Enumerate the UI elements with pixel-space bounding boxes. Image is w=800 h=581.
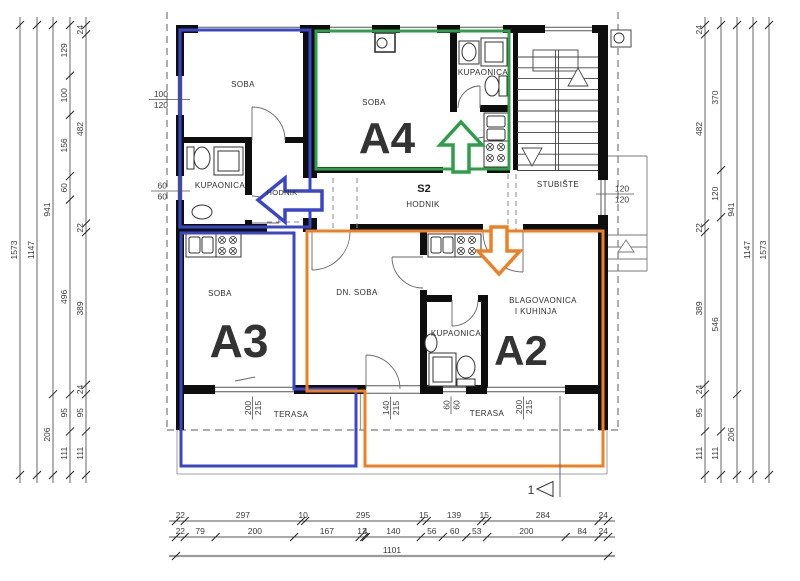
dim-label: 200	[248, 526, 262, 536]
section-triangle-icon	[537, 482, 553, 497]
dim-label: 941	[42, 202, 52, 216]
dimension-chains: 1573114794120612910015660496951112448222…	[9, 17, 773, 560]
apartment-overlays	[180, 30, 603, 466]
room-label-kupaonica-a3: KUPAONICA	[195, 181, 245, 190]
dim-window: 140	[381, 401, 391, 415]
kitchen-sink-icon	[202, 237, 213, 253]
dim-label: 1147	[26, 241, 36, 260]
section-number: 1	[528, 483, 535, 497]
shower-icon	[433, 357, 452, 382]
dim-label: 95	[75, 408, 85, 418]
dim-label: 95	[59, 408, 69, 418]
dim-label: 22	[176, 526, 186, 536]
roof-projection-dashed-lines	[167, 12, 621, 430]
dim-label: 389	[75, 301, 85, 315]
dim-window: 120	[615, 195, 629, 205]
shower-icon	[218, 151, 239, 171]
dim-label: 24	[75, 25, 85, 35]
sink-icon	[192, 205, 212, 219]
exterior-stair	[608, 156, 647, 271]
staircase	[517, 50, 598, 171]
dim-window: 60	[158, 192, 168, 202]
dim-label: 15	[479, 510, 489, 520]
room-label-blagovaonica-1: BLAGOVAONICA	[509, 296, 577, 305]
dim-label: 95	[694, 408, 704, 418]
dim-label: 60	[450, 526, 460, 536]
shower-icon	[485, 42, 503, 62]
room-label-soba-a3: SOBA	[208, 289, 232, 298]
dim-label: 297	[236, 510, 250, 520]
dim-label: 370	[710, 90, 720, 104]
dim-label: 111	[75, 446, 85, 459]
dim-label: 546	[710, 317, 720, 331]
toilet-icon	[457, 379, 475, 386]
dim-label: 111	[710, 446, 720, 459]
dim-window: 215	[524, 400, 534, 414]
room-label-terasa-right: TERASA	[470, 409, 505, 418]
dim-label: 24	[599, 510, 609, 520]
dim-label: 84	[577, 526, 587, 536]
dim-label: 60	[59, 183, 69, 193]
room-label-kupaonica-a4: KUPAONICA	[458, 68, 508, 77]
dim-window: 60	[442, 400, 452, 410]
dim-label: 1101	[383, 545, 402, 555]
kitchen-sink-icon	[189, 237, 200, 253]
apartment-label-a2: A2	[494, 327, 548, 374]
room-label-soba-tl: SOBA	[231, 80, 255, 89]
dim-label: 111	[694, 446, 704, 459]
dim-label: 482	[75, 122, 85, 136]
kitchen-sink-icon	[431, 237, 441, 253]
dim-label: 22	[176, 510, 186, 520]
dim-label: 53	[472, 526, 482, 536]
dim-label: 4	[363, 526, 368, 536]
vent-shaft-icon	[377, 38, 387, 48]
dim-label: 156	[59, 138, 69, 152]
a2-entrance-arrow-icon	[478, 227, 520, 274]
a4-entrance-arrow-icon	[440, 122, 482, 172]
a3-lower-outline	[181, 233, 356, 466]
dim-window: 60	[158, 181, 168, 191]
vent-shaft-icon	[614, 33, 624, 43]
kitchen-sink-icon	[487, 129, 505, 140]
dim-label: 941	[726, 202, 736, 216]
dim-label: 496	[59, 290, 69, 304]
a2-outline	[307, 231, 603, 466]
dim-window: 215	[253, 401, 263, 415]
dim-window: 60	[452, 400, 462, 410]
dim-label: 22	[75, 223, 85, 233]
kitchen-sink-icon	[487, 116, 505, 127]
dim-label: 22	[694, 223, 704, 233]
dim-label: 206	[726, 427, 736, 441]
dim-label: 100	[59, 88, 69, 102]
room-label-kupaonica-a2: KUPAONICA	[431, 329, 481, 338]
stair-down-arrow-icon	[522, 148, 542, 166]
dim-label: 1573	[9, 240, 19, 259]
dim-label: 482	[694, 122, 704, 136]
dim-label: 10	[298, 510, 308, 520]
dim-label: 24	[694, 25, 704, 35]
dim-label: 24	[599, 526, 609, 536]
dim-label: 24	[75, 384, 85, 394]
dim-window: 120	[615, 184, 629, 194]
dim-label: 129	[59, 43, 69, 57]
toilet-icon	[499, 76, 507, 96]
dim-label: 1147	[742, 241, 752, 260]
washbasin-icon	[462, 43, 476, 61]
toilet-icon	[187, 147, 194, 169]
apartment-label-a3: A3	[210, 315, 269, 367]
kitchen-sink-icon	[443, 237, 453, 253]
floor-plan-page: 1 100 120 60 60 120 120 200 215 140 215 …	[0, 0, 800, 581]
room-label-hodnik: HODNIK	[406, 200, 440, 209]
dim-label: 120	[710, 186, 720, 200]
room-label-terasa-left: TERASA	[274, 410, 309, 419]
dim-label: 206	[42, 427, 52, 441]
dim-label: 200	[519, 526, 533, 536]
dim-label: 24	[694, 384, 704, 394]
room-label-stubiste: STUBIŠTE	[537, 180, 579, 189]
dim-label: 295	[356, 510, 370, 520]
room-label-dn-soba: DN. SOBA	[336, 288, 378, 297]
dim-window: 215	[391, 401, 401, 415]
dim-label: 139	[447, 510, 461, 520]
dim-window: 200	[514, 400, 524, 414]
toilet-icon	[194, 147, 210, 169]
dim-label: 56	[427, 526, 437, 536]
room-label-blagovaonica-2: I KUHINJA	[515, 307, 558, 316]
exterior-stair-up-arrow-icon	[618, 240, 634, 252]
dim-label: 389	[694, 301, 704, 315]
dim-label: 167	[320, 526, 334, 536]
room-label-s2: S2	[417, 183, 430, 195]
dim-label: 1573	[758, 240, 768, 259]
dim-window: 100	[154, 89, 168, 99]
toilet-icon	[457, 356, 475, 378]
dim-window: 120	[154, 100, 168, 110]
dim-label: 284	[536, 510, 550, 520]
room-label-hodnik-a3: HODNIK	[267, 188, 298, 197]
room-label-soba-a4: SOBA	[362, 98, 386, 107]
dim-window: 200	[243, 401, 253, 415]
a3-entrance-arrow-icon	[258, 178, 322, 222]
dim-label: 79	[195, 526, 205, 536]
toilet-icon	[485, 76, 499, 96]
floor-plan-drawing: 1 100 120 60 60 120 120 200 215 140 215 …	[0, 0, 800, 581]
apartment-label-a4: A4	[359, 114, 416, 163]
dim-label: 15	[419, 510, 429, 520]
dim-label: 111	[59, 446, 69, 459]
dim-label: 140	[386, 526, 400, 536]
